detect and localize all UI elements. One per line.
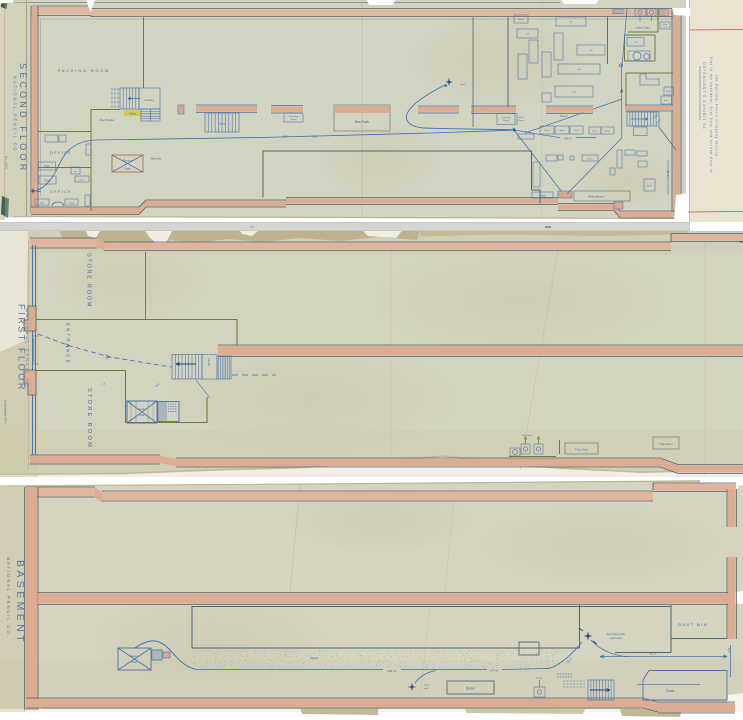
svg-text:Room: Room [503, 120, 509, 122]
svg-text:Ladies Toilet: Ladies Toilet [635, 26, 650, 30]
svg-text:Vat: Vat [589, 49, 593, 52]
svg-text:Elevator: Elevator [123, 159, 133, 163]
svg-text:180': 180' [282, 135, 288, 139]
svg-text:Spot where body: Spot where body [607, 633, 627, 636]
svg-text:Vat: Vat [569, 21, 573, 24]
svg-text:Chute: Chute [666, 689, 675, 693]
svg-text:Stairs: Stairs [460, 83, 466, 86]
svg-text:Ashes: Ashes [310, 656, 319, 660]
svg-text:STORE ROOM: STORE ROOM [86, 253, 92, 308]
svg-text:OFFICE: OFFICE [50, 151, 72, 155]
svg-text:Mach: Mach [588, 159, 593, 161]
svg-text:Hose Conn: Hose Conn [522, 435, 532, 437]
svg-text:87'-0": 87'-0" [491, 669, 499, 673]
svg-text:Room: Room [291, 119, 297, 121]
svg-text:Mach: Mach [518, 19, 524, 21]
svg-text:SECOND FLOOR: SECOND FLOOR [18, 63, 28, 173]
svg-text:OFFICE: OFFICE [50, 190, 72, 194]
svg-text:Boiler: Boiler [466, 687, 476, 691]
svg-text:Stock: Stock [664, 99, 669, 102]
svg-text:Copyrighted 1913: Copyrighted 1913 [4, 400, 8, 424]
svg-text:Vat: Vat [577, 68, 581, 71]
svg-text:Trap Door: Trap Door [659, 442, 672, 446]
svg-text:Shaft: Shaft [124, 167, 130, 171]
svg-text:136'-0": 136'-0" [387, 669, 396, 673]
svg-text:Shaft: Shaft [131, 660, 137, 664]
svg-text:Septic: Septic [424, 684, 431, 687]
svg-text:Wash: Wash [518, 117, 523, 119]
svg-text:Vat: Vat [634, 41, 638, 44]
svg-text:Stairs: Stairs [129, 112, 137, 116]
svg-text:Mach: Mach [545, 130, 550, 132]
svg-text:PACKING ROOM: PACKING ROOM [58, 69, 110, 73]
svg-text:STORE ROOM: STORE ROOM [86, 388, 92, 449]
svg-text:Mach: Mach [560, 130, 565, 132]
svg-text:was found: was found [610, 637, 622, 640]
svg-text:48'-0": 48'-0" [564, 137, 572, 141]
svg-text:BASEMENT: BASEMENT [14, 560, 26, 645]
svg-text:Vat: Vat [526, 33, 530, 36]
svg-text:DEFENDANT'S EXHIBIT 53.: DEFENDANT'S EXHIBIT 53. [702, 62, 706, 131]
svg-text:Case: Case [79, 180, 85, 182]
svg-text:the National Pencil Company fa: the National Pencil Company factory. [715, 75, 719, 158]
svg-text:Mould: Mould [666, 91, 671, 93]
svg-text:Bench: Bench [560, 114, 568, 118]
svg-text:Help: Help [40, 203, 45, 205]
svg-text:NATIONAL PENCIL CO.: NATIONAL PENCIL CO. [25, 309, 30, 392]
svg-text:Shaft: Shaft [139, 414, 145, 417]
svg-text:Box Rack: Box Rack [355, 120, 370, 124]
svg-text:Elevator: Elevator [130, 654, 140, 658]
svg-text:Landing: Landing [144, 98, 154, 102]
svg-text:45'-0": 45'-0" [666, 170, 670, 177]
svg-text:Pay Window: Pay Window [100, 118, 115, 122]
svg-text:Mach: Mach [593, 131, 598, 133]
svg-text:NATIONAL PENCIL CO.: NATIONAL PENCIL CO. [6, 557, 11, 639]
svg-text:Dressing: Dressing [289, 115, 298, 118]
svg-text:Plat of the basement, first fl: Plat of the basement, first floor and se… [709, 57, 713, 173]
svg-text:120': 120' [312, 135, 318, 139]
svg-text:9'-0": 9'-0" [727, 648, 731, 653]
svg-text:Mach: Mach [574, 130, 579, 132]
svg-text:Water Box: Water Box [150, 158, 162, 161]
svg-text:Stairs: Stairs [219, 123, 226, 126]
svg-text:Scuttle: Scuttle [536, 677, 543, 680]
svg-text:Work Bench: Work Bench [588, 195, 604, 199]
svg-text:Table: Table [44, 165, 50, 168]
svg-text:Mach: Mach [647, 186, 652, 188]
svg-text:45'-0": 45'-0" [649, 652, 657, 656]
svg-text:48: 48 [739, 240, 743, 244]
svg-text:Closet: Closet [662, 26, 668, 29]
svg-text:Trap Door: Trap Door [575, 448, 588, 452]
svg-text:Room: Room [518, 120, 524, 122]
svg-text:Vat: Vat [572, 91, 576, 94]
svg-text:Elevator: Elevator [138, 408, 147, 411]
svg-text:Mach: Mach [605, 131, 610, 133]
svg-text:Dressing: Dressing [502, 116, 511, 119]
svg-text:Landing: Landing [207, 358, 210, 367]
svg-text:NATIONAL PENCIL CO.: NATIONAL PENCIL CO. [13, 76, 18, 155]
svg-text:Lunch: Lunch [539, 195, 546, 198]
svg-text:DUST BIN: DUST BIN [678, 622, 708, 627]
